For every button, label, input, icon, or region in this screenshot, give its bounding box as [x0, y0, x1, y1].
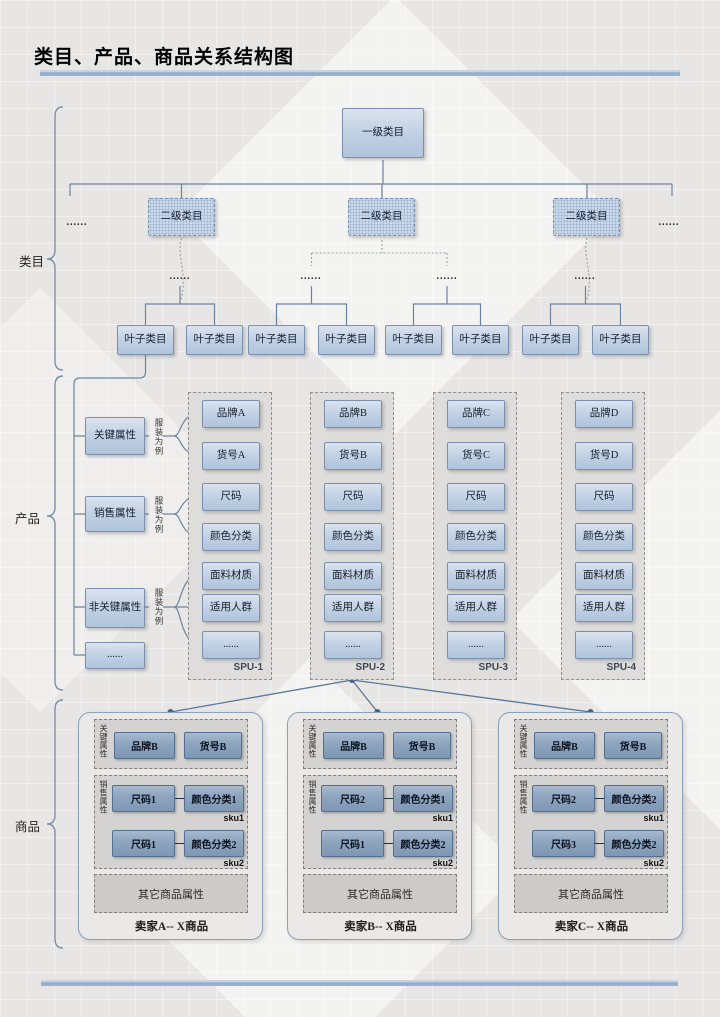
level2-category-node: 二级类目	[348, 198, 415, 236]
item-no-node: 货号B	[184, 732, 242, 759]
ellipsis-label: ......	[292, 271, 330, 282]
junction-dots	[168, 677, 594, 715]
spu-attr-node: 颜色分类	[202, 523, 260, 551]
spu-column: 品牌C 货号C 尺码 颜色分类 面料材质 适用人群 ...... SPU-3	[433, 392, 517, 680]
sku-link	[384, 843, 393, 844]
spu-attr-node: 品牌D	[575, 400, 633, 428]
spu-attr-node: 面料材质	[575, 562, 633, 590]
sku-link	[595, 798, 604, 799]
more-attr-node: ......	[85, 642, 145, 669]
color-node: 颜色分类1	[184, 785, 244, 812]
sku-label: sku2	[393, 858, 453, 868]
ellipsis-label: ......	[428, 271, 466, 282]
other-attrs-box: 其它商品属性	[303, 874, 457, 913]
seller-key-group: 关键属性 品牌B 货号B	[303, 719, 457, 769]
color-node: 颜色分类1	[393, 785, 453, 812]
seller-key-group: 关键属性 品牌B 货号B	[514, 719, 668, 769]
spu-attr-node: 货号B	[324, 442, 382, 470]
spu-attr-node: 适用人群	[202, 594, 260, 622]
sku-label: sku1	[393, 813, 453, 823]
spu-attr-node: 尺码	[575, 483, 633, 511]
size-node: 尺码1	[112, 830, 175, 857]
seller-sales-group: 销售属性 尺码2 颜色分类2 sku1 尺码3 颜色分类2 sku2	[514, 775, 668, 869]
sku-link	[384, 798, 393, 799]
spu-attr-node: 品牌A	[202, 400, 260, 428]
spu-label: SPU-2	[325, 662, 385, 673]
spu-column: 品牌A 货号A 尺码 颜色分类 面料材质 适用人群 ...... SPU-1	[188, 392, 272, 680]
spu-label: SPU-3	[448, 662, 508, 673]
sku-link	[175, 798, 184, 799]
spu-attr-node: ......	[575, 631, 633, 659]
brand-node: 品牌B	[323, 732, 384, 759]
leaf-category-node: 叶子类目	[318, 325, 375, 355]
color-node: 颜色分类2	[393, 830, 453, 857]
spu-attr-node: 面料材质	[447, 562, 505, 590]
spu-attr-node: 货号A	[202, 442, 260, 470]
item-no-node: 货号B	[604, 732, 662, 759]
section-label-product: 产品	[10, 508, 40, 527]
ellipsis-label: ......	[650, 217, 688, 228]
brand-node: 品牌B	[114, 732, 175, 759]
clothing-example-note: 服装为例	[149, 410, 163, 464]
footer-divider	[41, 980, 678, 986]
spu-attr-node: ......	[447, 631, 505, 659]
spu-attr-node: 适用人群	[575, 594, 633, 622]
goods-brace	[47, 700, 63, 948]
spu-label: SPU-4	[576, 662, 636, 673]
level2-category-node: 二级类目	[148, 198, 215, 236]
spu-label: SPU-1	[203, 662, 263, 673]
leaf-category-node: 叶子类目	[248, 325, 305, 355]
size-node: 尺码2	[532, 785, 595, 812]
spu-attr-node: 尺码	[202, 483, 260, 511]
clothing-example-note: 服装为例	[149, 488, 163, 542]
spu-attr-node: 尺码	[324, 483, 382, 511]
spu-attr-node: 适用人群	[447, 594, 505, 622]
color-node: 颜色分类2	[604, 785, 664, 812]
level2-category-node: 二级类目	[553, 198, 620, 236]
spu-attr-node: 面料材质	[202, 562, 260, 590]
ellipsis-label: ......	[58, 217, 96, 228]
size-node: 尺码3	[532, 830, 595, 857]
item-no-node: 货号B	[393, 732, 451, 759]
size-node: 尺码2	[321, 785, 384, 812]
product-brace	[47, 376, 63, 690]
spu-seller-links	[171, 680, 591, 712]
sku-link	[175, 843, 184, 844]
seller-card: 关键属性 品牌B 货号B 销售属性 尺码2 颜色分类2 sku1 尺码3 颜色分…	[498, 712, 683, 940]
sku-label: sku2	[184, 858, 244, 868]
root-category-node: 一级类目	[342, 108, 424, 158]
ellipsis-label: ......	[161, 271, 199, 282]
seller-key-group-label: 关键属性	[99, 724, 107, 758]
sales-attr-node: 销售属性	[85, 496, 145, 532]
ellipsis-label: ......	[566, 271, 604, 282]
other-attrs-box: 其它商品属性	[514, 874, 668, 913]
seller-key-group-label: 关键属性	[308, 724, 316, 758]
spu-attr-node: 品牌C	[447, 400, 505, 428]
title-divider	[40, 70, 680, 76]
seller-sales-group-label: 销售属性	[519, 780, 527, 814]
size-node: 尺码1	[321, 830, 384, 857]
nonkey-attr-node: 非关键属性	[85, 588, 145, 628]
leaf-category-node: 叶子类目	[186, 325, 243, 355]
dotted-connectors	[180, 238, 589, 300]
leaf-category-node: 叶子类目	[385, 325, 442, 355]
key-attr-node: 关键属性	[85, 417, 145, 455]
seller-name: 卖家C-- X商品	[499, 918, 684, 934]
section-label-category: 类目	[14, 251, 44, 270]
spu-attr-node: 颜色分类	[575, 523, 633, 551]
spu-attr-node: ......	[202, 631, 260, 659]
seller-name: 卖家A-- X商品	[79, 918, 264, 934]
leaf-category-node: 叶子类目	[522, 325, 579, 355]
seller-sales-group-label: 销售属性	[308, 780, 316, 814]
color-node: 颜色分类2	[184, 830, 244, 857]
sku-label: sku2	[604, 858, 664, 868]
leaf-category-node: 叶子类目	[592, 325, 649, 355]
sku-link	[595, 843, 604, 844]
leaf-category-node: 叶子类目	[117, 325, 174, 355]
brand-node: 品牌B	[534, 732, 595, 759]
spu-attr-node: 适用人群	[324, 594, 382, 622]
category-brace	[47, 107, 63, 370]
other-attrs-box: 其它商品属性	[94, 874, 248, 913]
seller-sales-group-label: 销售属性	[99, 780, 107, 814]
spu-attr-node: 尺码	[447, 483, 505, 511]
spu-attr-node: 颜色分类	[324, 523, 382, 551]
seller-card: 关键属性 品牌B 货号B 销售属性 尺码2 颜色分类1 sku1 尺码1 颜色分…	[287, 712, 472, 940]
spu-attr-node: 颜色分类	[447, 523, 505, 551]
sku-label: sku1	[604, 813, 664, 823]
spu-column: 品牌D 货号D 尺码 颜色分类 面料材质 适用人群 ...... SPU-4	[561, 392, 645, 680]
spu-attr-node: 货号C	[447, 442, 505, 470]
color-node: 颜色分类2	[604, 830, 664, 857]
sku-label: sku1	[184, 813, 244, 823]
spu-attr-node: 品牌B	[324, 400, 382, 428]
seller-card: 关键属性 品牌B 货号B 销售属性 尺码1 颜色分类1 sku1 尺码1 颜色分…	[78, 712, 263, 940]
seller-key-group-label: 关键属性	[519, 724, 527, 758]
seller-sales-group: 销售属性 尺码2 颜色分类1 sku1 尺码1 颜色分类2 sku2	[303, 775, 457, 869]
spu-attr-node: 面料材质	[324, 562, 382, 590]
size-node: 尺码1	[112, 785, 175, 812]
spu-attr-node: ......	[324, 631, 382, 659]
spu-column: 品牌B 货号B 尺码 颜色分类 面料材质 适用人群 ...... SPU-2	[310, 392, 394, 680]
seller-name: 卖家B-- X商品	[288, 918, 473, 934]
section-label-goods: 商品	[10, 816, 40, 835]
spu-attr-node: 货号D	[575, 442, 633, 470]
seller-sales-group: 销售属性 尺码1 颜色分类1 sku1 尺码1 颜色分类2 sku2	[94, 775, 248, 869]
seller-key-group: 关键属性 品牌B 货号B	[94, 719, 248, 769]
clothing-example-note: 服装为例	[149, 580, 163, 634]
page-title: 类目、产品、商品关系结构图	[34, 42, 294, 69]
leaf-category-node: 叶子类目	[452, 325, 509, 355]
diagram-canvas: 类目、产品、商品关系结构图 类目 产品 商品 一级类目 ...... 二级类目 …	[0, 0, 720, 1017]
